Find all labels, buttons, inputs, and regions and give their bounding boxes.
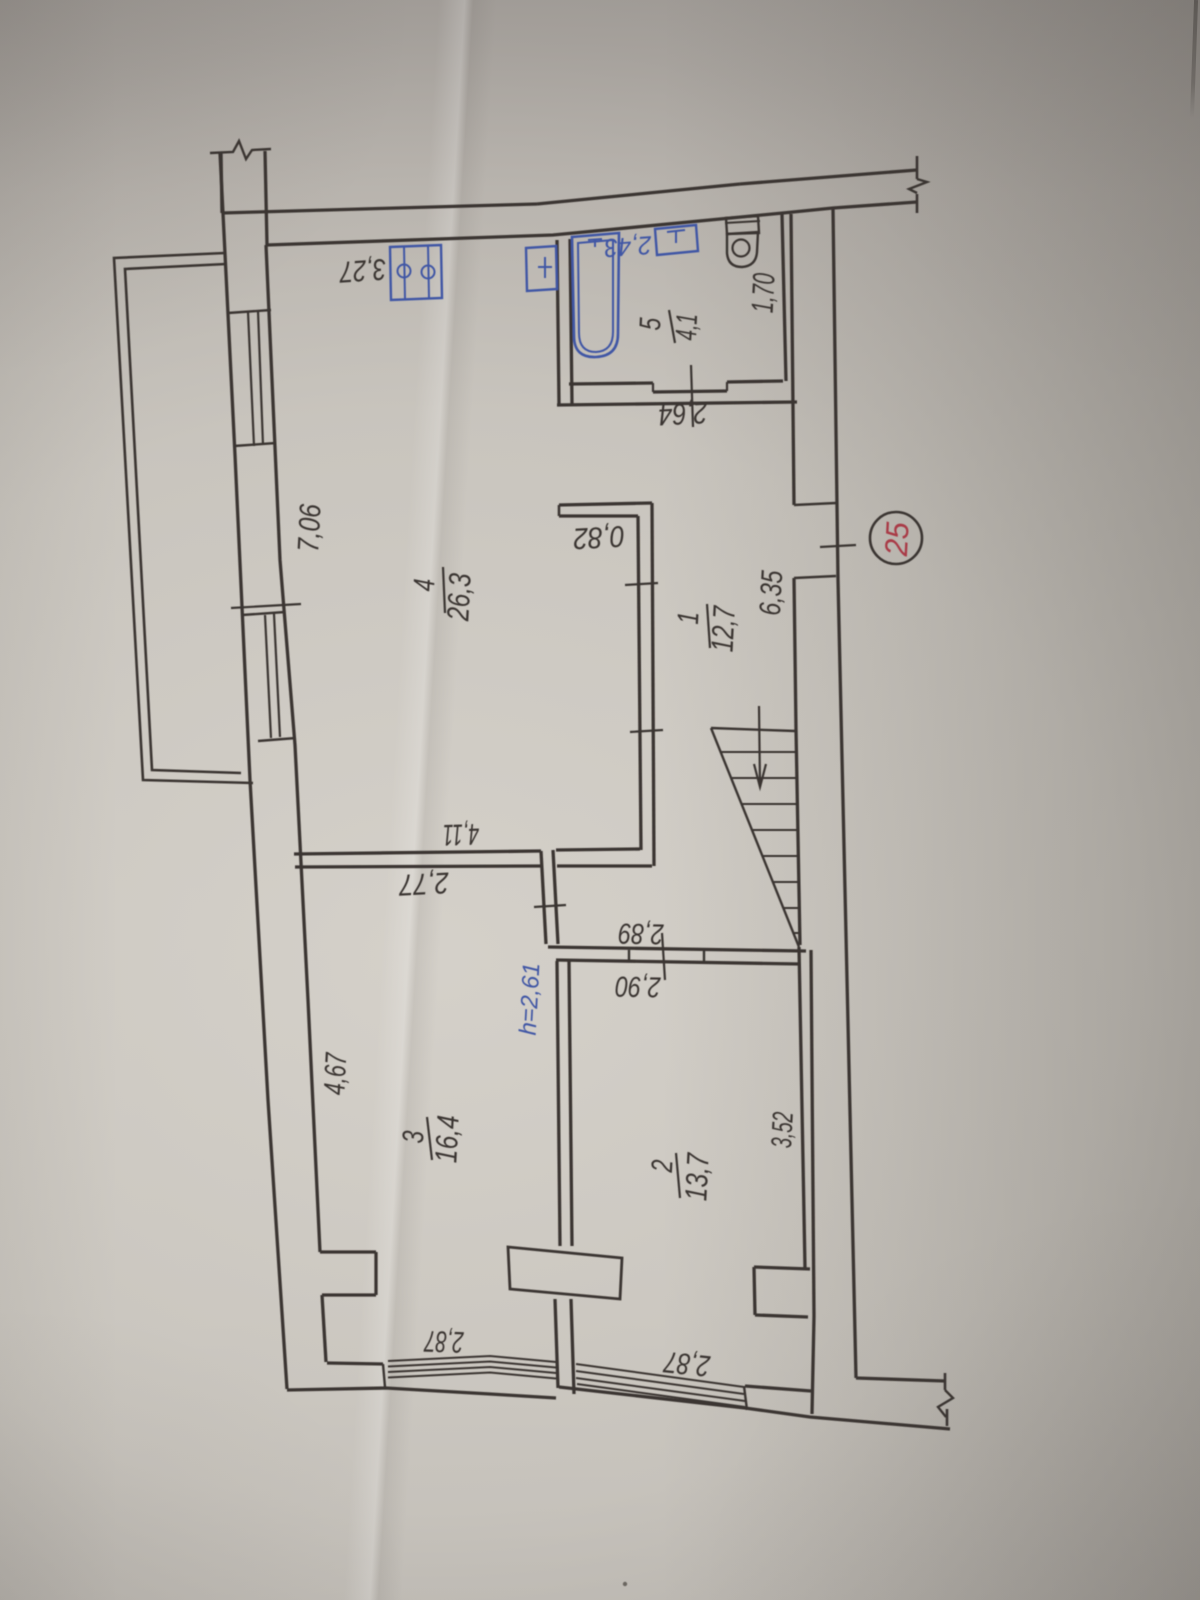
- svg-text:16,4: 16,4: [429, 1114, 466, 1163]
- svg-text:2,90: 2,90: [615, 970, 662, 1004]
- svg-text:4,1: 4,1: [670, 313, 705, 341]
- svg-text:2,43: 2,43: [603, 230, 653, 262]
- svg-text:0,82: 0,82: [572, 520, 625, 557]
- svg-text:2,87: 2,87: [662, 1345, 713, 1383]
- svg-text:25: 25: [878, 521, 916, 558]
- svg-text:4,67: 4,67: [317, 1051, 354, 1096]
- svg-text:26,3: 26,3: [441, 572, 478, 623]
- svg-text:2: 2: [645, 1159, 680, 1174]
- svg-text:h=2,61: h=2,61: [514, 962, 545, 1036]
- svg-text:4,11: 4,11: [442, 817, 480, 851]
- svg-text:2,89: 2,89: [618, 917, 665, 951]
- svg-text:7,06: 7,06: [291, 503, 327, 553]
- svg-text:1: 1: [671, 611, 706, 625]
- svg-text:4: 4: [407, 578, 442, 592]
- svg-text:5: 5: [633, 317, 668, 331]
- svg-text:3: 3: [396, 1130, 431, 1144]
- svg-text:2,77: 2,77: [397, 866, 451, 902]
- svg-text:3,52: 3,52: [766, 1111, 800, 1149]
- svg-text:1,70: 1,70: [744, 272, 781, 314]
- svg-text:13,7: 13,7: [679, 1151, 716, 1202]
- svg-text:3,27: 3,27: [338, 252, 388, 289]
- svg-text:2,87: 2,87: [423, 1324, 465, 1358]
- svg-text:12,7: 12,7: [704, 604, 741, 653]
- svg-text:6,35: 6,35: [753, 570, 789, 617]
- svg-text:2,64: 2,64: [658, 396, 710, 432]
